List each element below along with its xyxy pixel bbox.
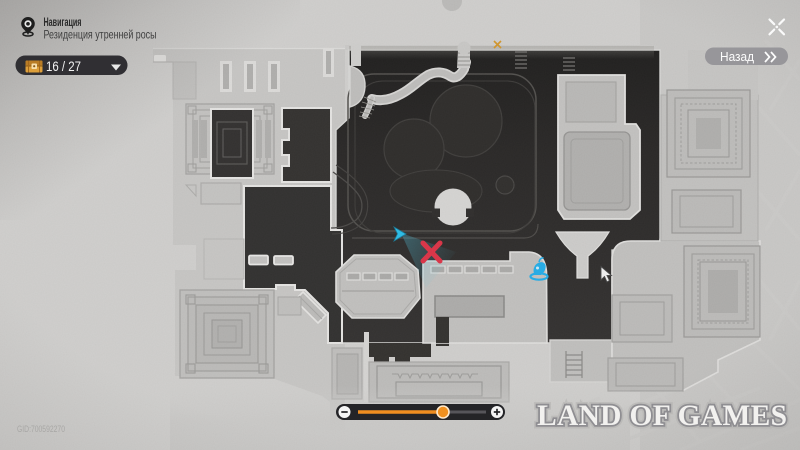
svg-text:Назад: Назад — [720, 49, 754, 64]
svg-text:LAND OF GAMES: LAND OF GAMES — [537, 400, 787, 432]
svg-text:16 / 27: 16 / 27 — [46, 59, 81, 74]
svg-text:GID:700592270: GID:700592270 — [17, 424, 65, 434]
svg-text:Резиденция утренней росы: Резиденция утренней росы — [44, 28, 157, 42]
